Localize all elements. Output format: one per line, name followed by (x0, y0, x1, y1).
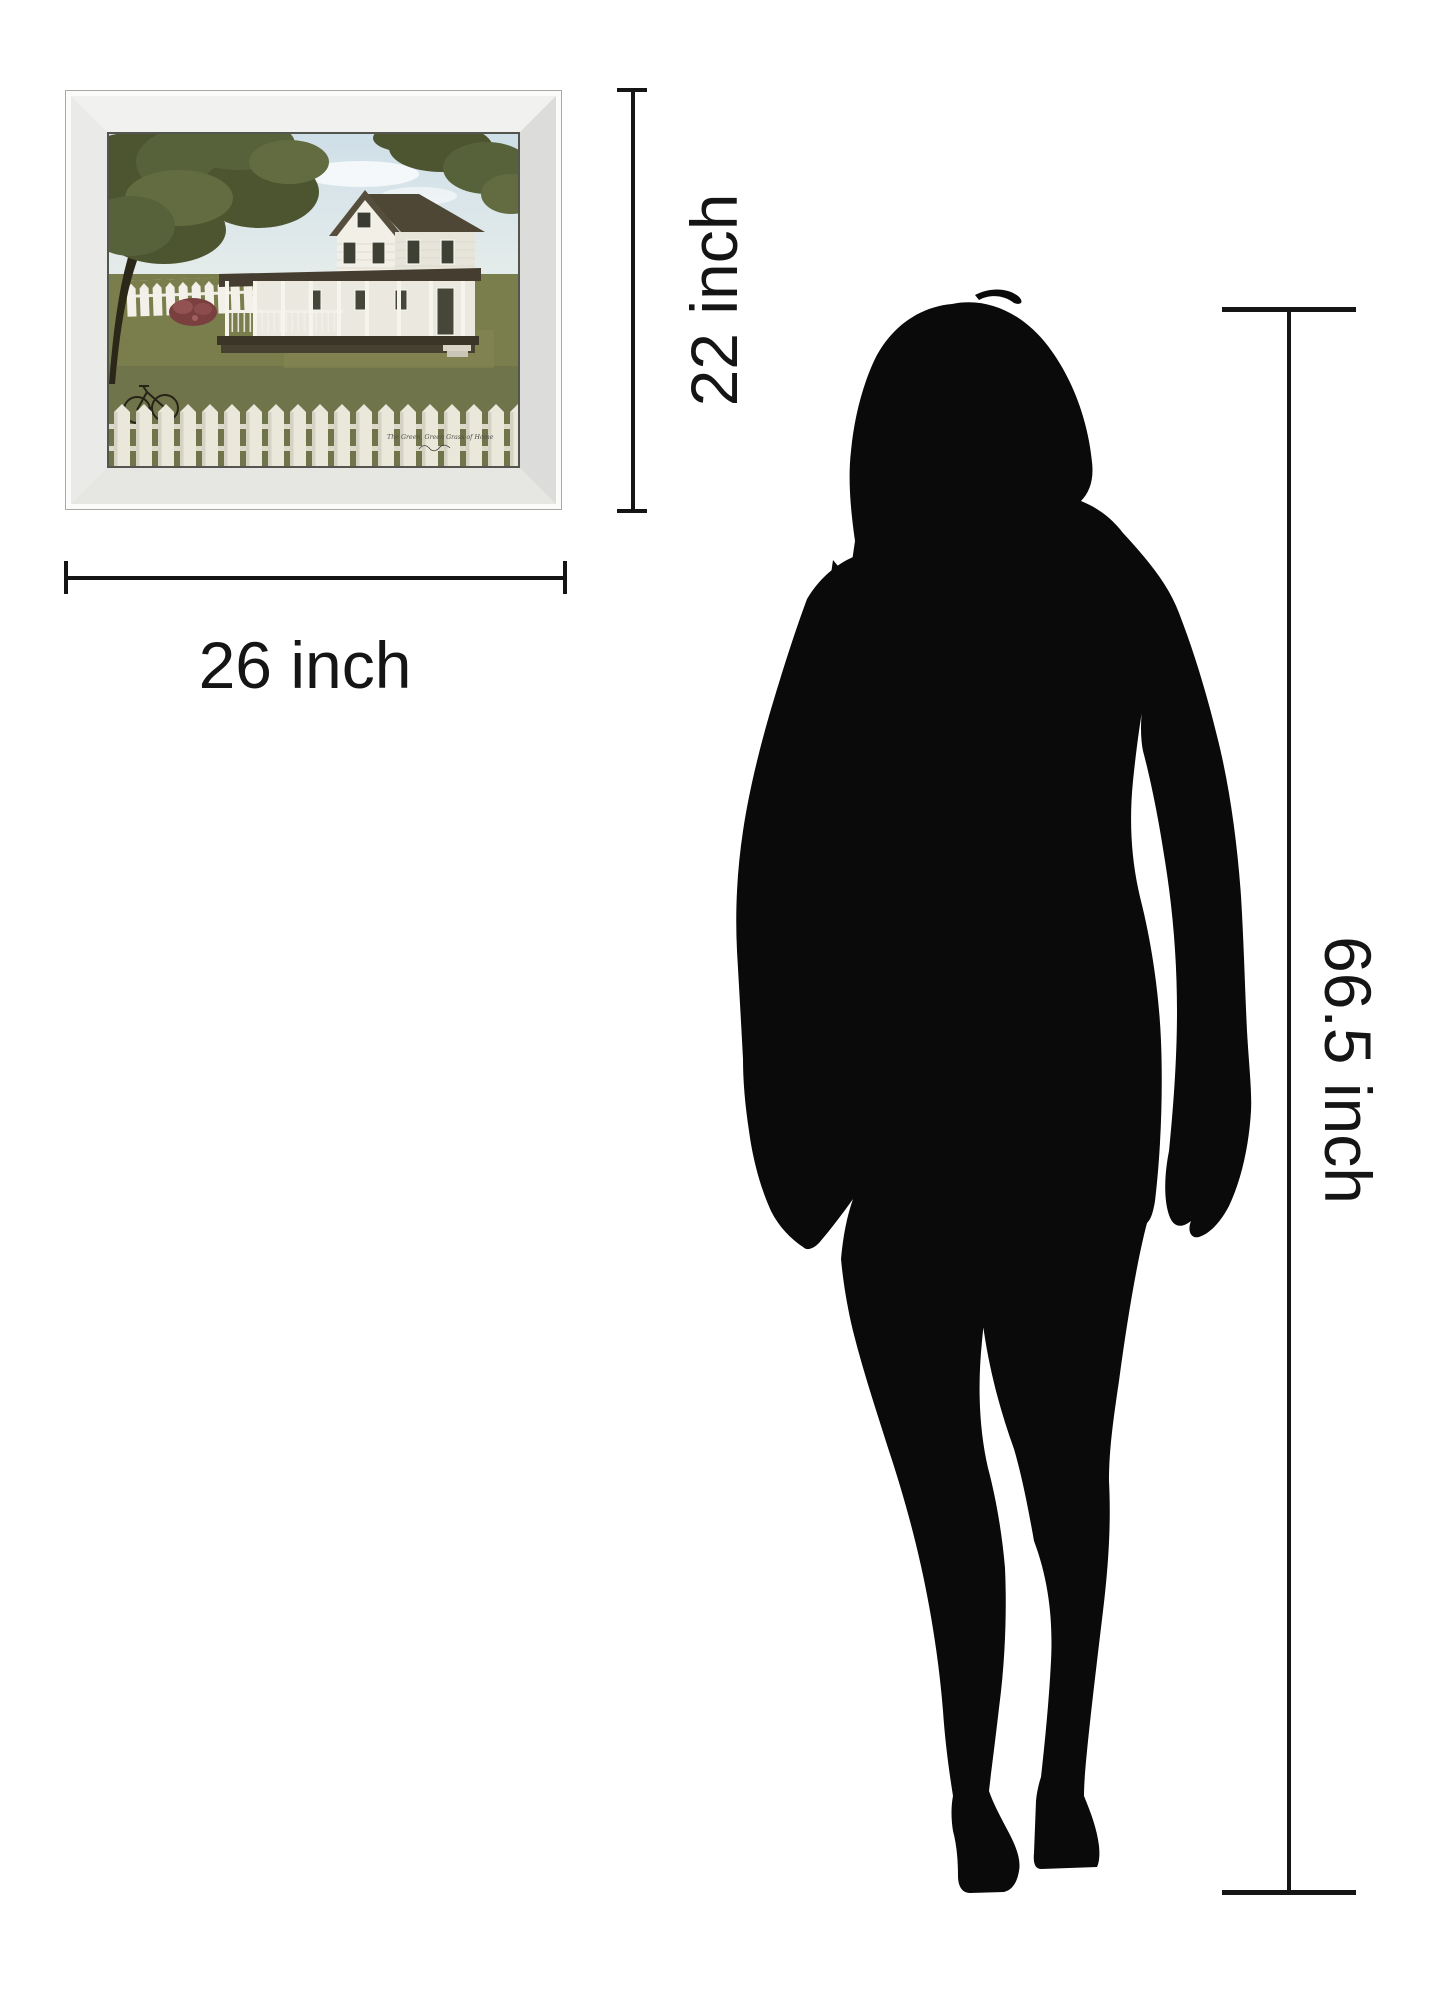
width-dimension-line (66, 576, 565, 580)
artwork-caption: The Green, Green Grass of Home (387, 434, 494, 441)
person-height-label: 66.5 inch (1303, 860, 1393, 1280)
person-height-tick-top (1222, 307, 1356, 312)
attic-window (357, 212, 371, 228)
woman-silhouette-body (736, 302, 1251, 1893)
porch-deck (217, 336, 479, 345)
flower-bush (169, 298, 217, 326)
width-dimension-label: 26 inch (95, 620, 515, 710)
artwork-scene: The Green, Green Grass of Home (109, 134, 518, 466)
hair-curl (975, 289, 1021, 303)
person-height-tick-bottom (1222, 1890, 1356, 1895)
framed-artwork: The Green, Green Grass of Home (65, 90, 562, 510)
door (437, 288, 454, 335)
porch-lattice (221, 345, 475, 353)
woman-silhouette (530, 288, 1292, 1900)
product-size-diagram: The Green, Green Grass of Home 22 inch 2… (0, 0, 1445, 1990)
width-dimension-tick-left (64, 561, 68, 594)
height-dimension-tick-top (617, 88, 647, 92)
person-height-dimension-line (1287, 309, 1291, 1893)
porch-steps (443, 345, 471, 351)
